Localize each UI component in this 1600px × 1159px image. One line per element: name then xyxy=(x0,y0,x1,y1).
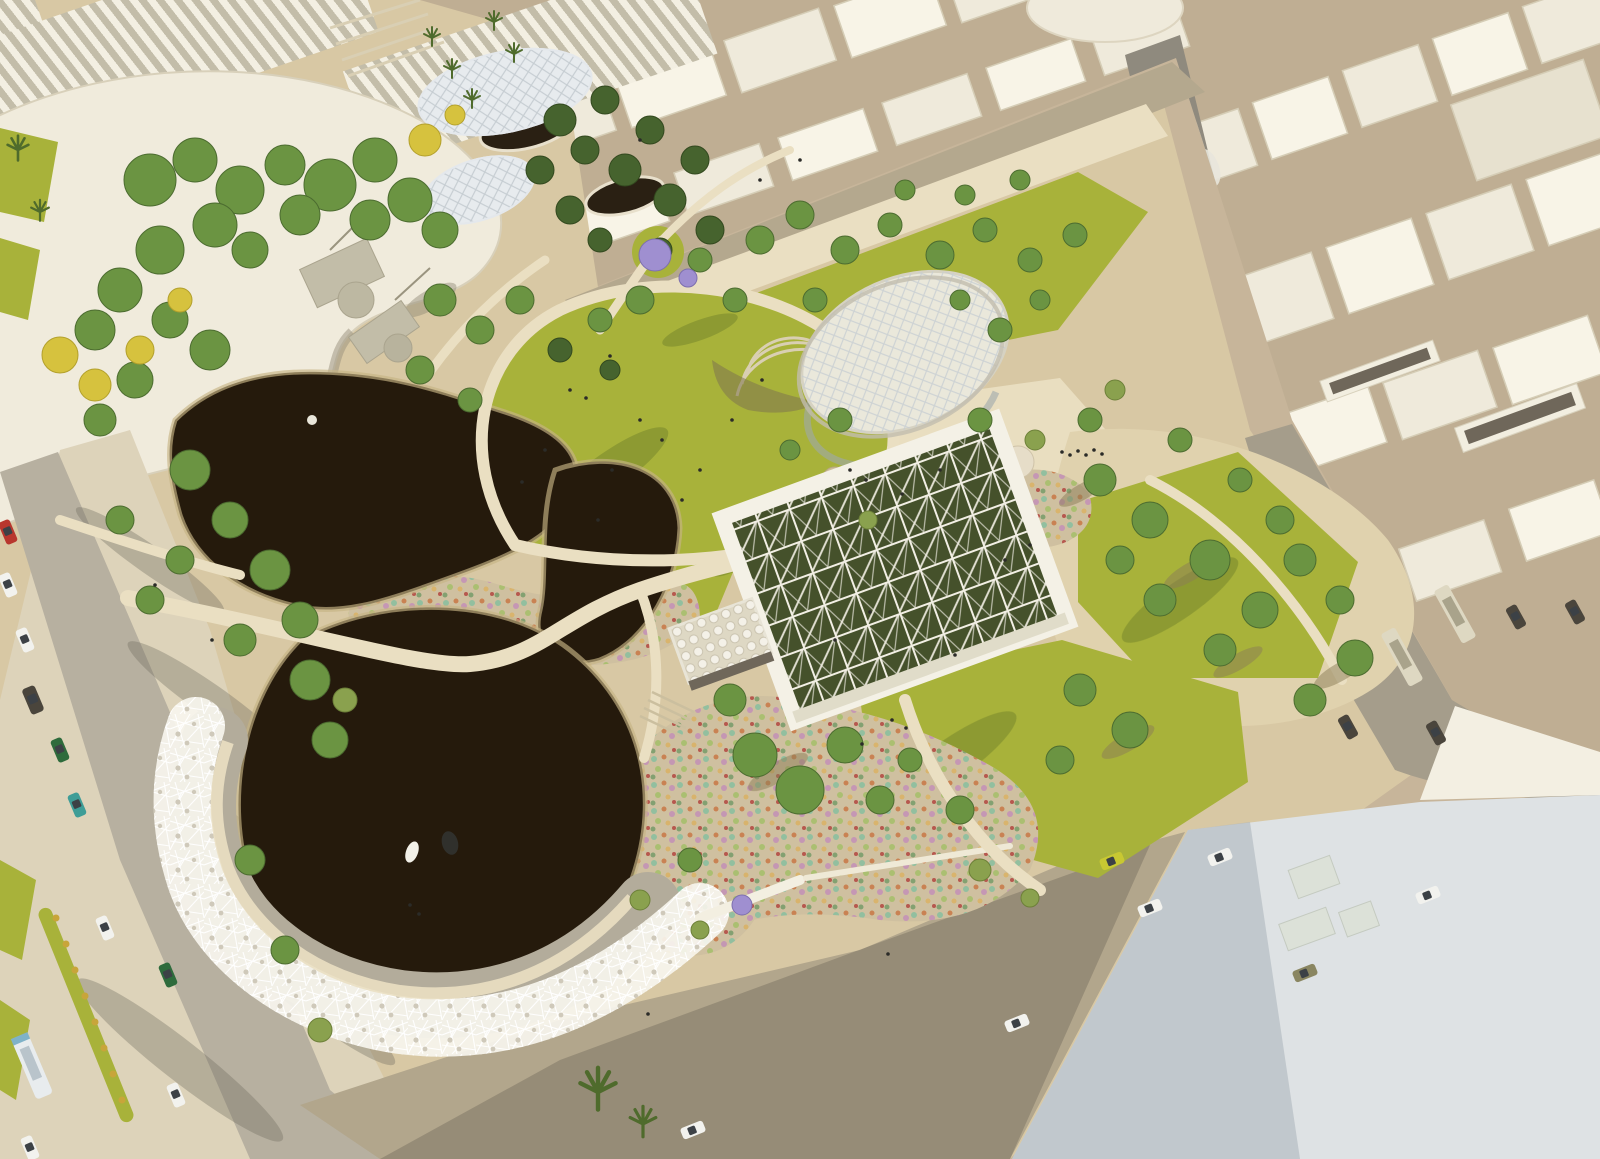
scene-canvas xyxy=(0,0,1600,1159)
pond-sculpture xyxy=(307,415,317,425)
aerial-render xyxy=(0,0,1600,1159)
